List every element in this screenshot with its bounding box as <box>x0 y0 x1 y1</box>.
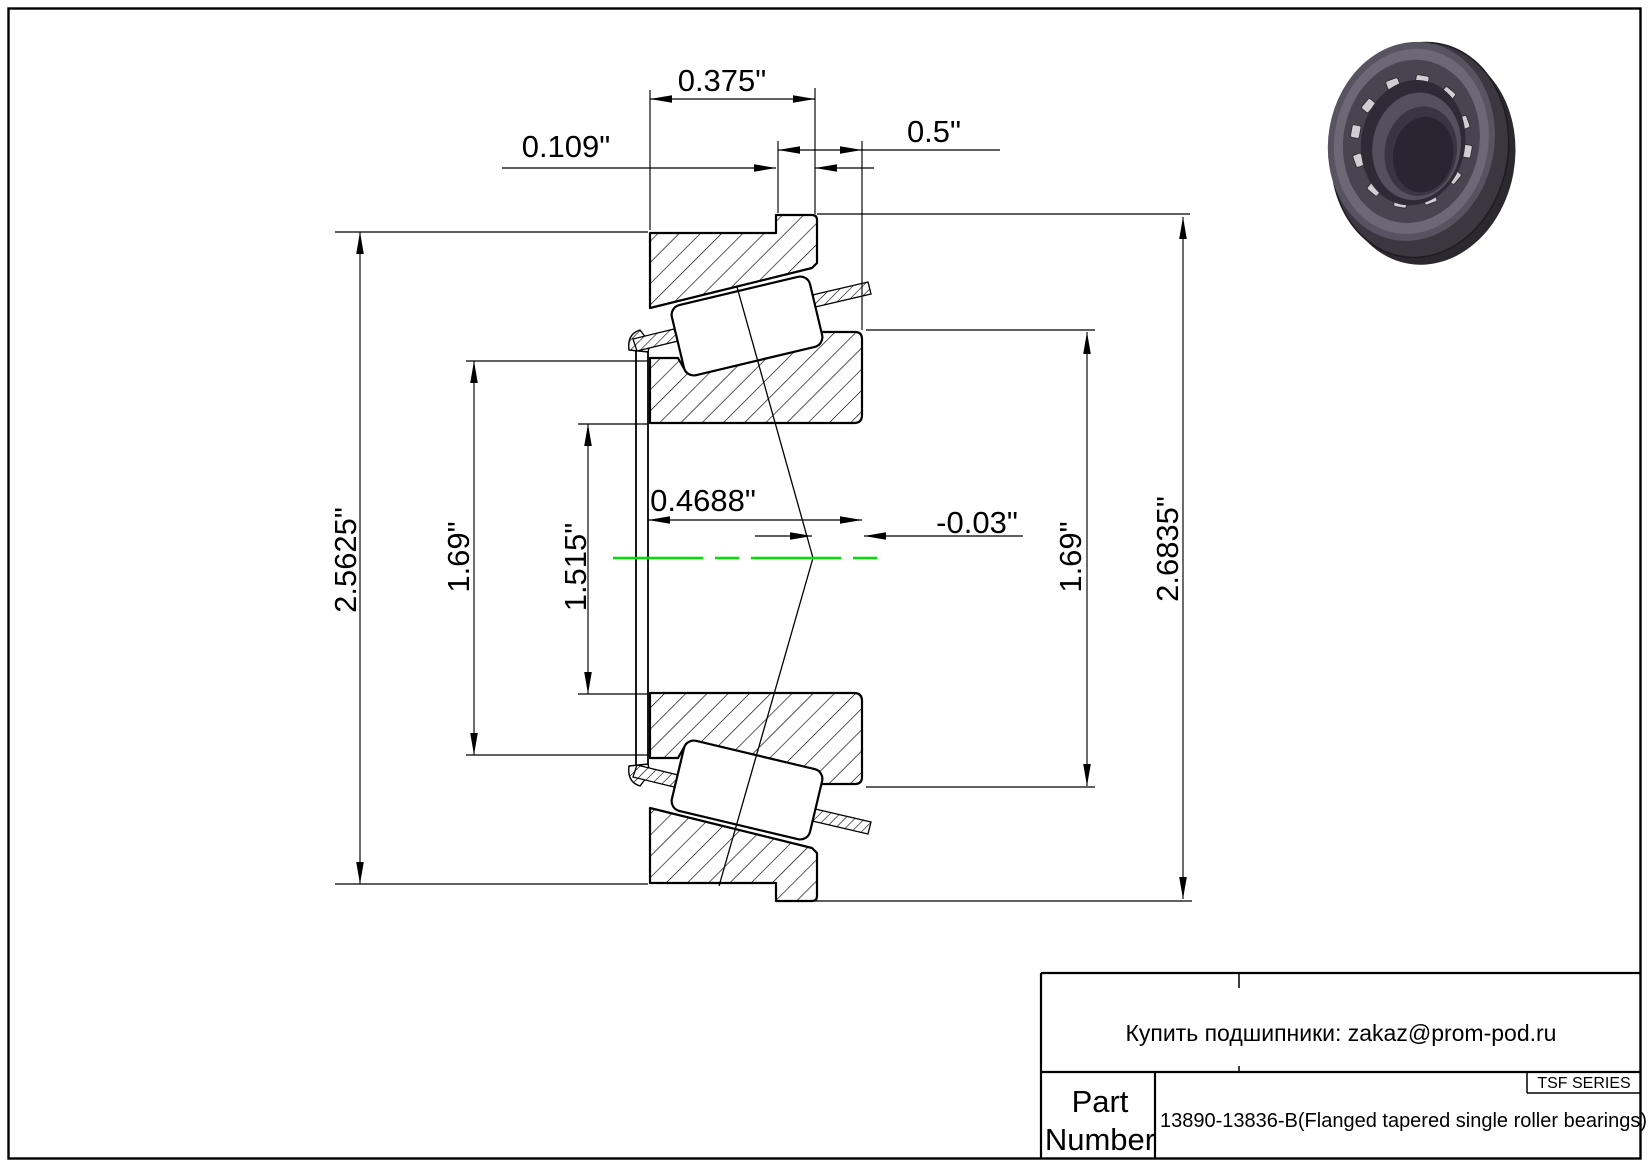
part-number-text: 13890-13836-B(Flanged tapered single rol… <box>1160 1110 1647 1132</box>
title-block: Купить подшипники: zakaz@prom-pod.ru Par… <box>1041 973 1647 1159</box>
dim-bore: 1.515" <box>558 523 593 612</box>
contact-text: Купить подшипники: zakaz@prom-pod.ru <box>1126 1020 1557 1046</box>
dim-cone-front-od: 1.69" <box>441 521 476 592</box>
dim-overall-width: 0.5" <box>907 114 961 149</box>
cage-big-end-strip-bottom <box>808 808 871 834</box>
part-label-line2: Number <box>1045 1122 1155 1157</box>
bearing-cross-section <box>613 215 884 901</box>
series-label: TSF SERIES <box>1537 1075 1630 1092</box>
bearing-3d-render <box>1309 27 1534 278</box>
dim-cage-standout: 0.4688" <box>650 483 756 518</box>
drawing-sheet: 0.375" 0.109" 0.5" 0.4688" -0.03" 2.5625… <box>0 0 1649 1167</box>
dim-flange-od: 2.6835" <box>1150 496 1185 602</box>
technical-drawing: 0.375" 0.109" 0.5" 0.4688" -0.03" 2.5625… <box>0 0 1649 1167</box>
dim-effective-center: -0.03" <box>936 505 1018 540</box>
part-label-line1: Part <box>1072 1084 1129 1119</box>
dim-flange-width: 0.109" <box>522 129 611 164</box>
dim-cup-od: 2.5625" <box>328 507 363 613</box>
dim-cup-width: 0.375" <box>678 63 767 98</box>
dim-cone-back-od: 1.69" <box>1053 521 1088 592</box>
